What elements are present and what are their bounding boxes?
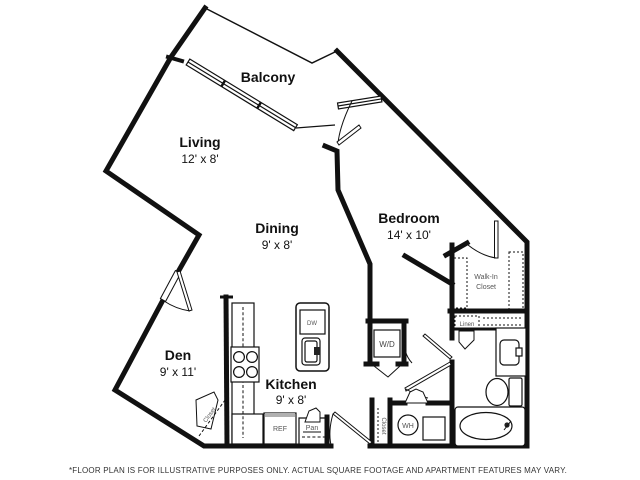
toilet-icon: [486, 378, 522, 406]
bathroom-vanity: [496, 328, 526, 376]
floor-plan-page: Balcony Living 12' x 8' Dining 9' x 8' B…: [0, 0, 640, 480]
floor-plan-svg: Balcony Living 12' x 8' Dining 9' x 8' B…: [0, 0, 640, 480]
stove-icon: [231, 347, 259, 382]
balcony-outline: [205, 8, 337, 63]
room-label-living: Living 12' x 8': [179, 134, 220, 166]
refrigerator-label: REF: [273, 426, 287, 433]
utility-door: [405, 389, 428, 403]
walk-in-closet-label-2: Closet: [476, 284, 496, 291]
room-label-balcony: Balcony: [241, 69, 296, 85]
svg-text:Kitchen: Kitchen: [265, 376, 316, 392]
washer-dryer-label: W/D: [379, 340, 395, 349]
linen-label: Linen: [460, 322, 475, 328]
svg-text:Bedroom: Bedroom: [378, 210, 439, 226]
kitchen-sink-icon: [302, 338, 320, 365]
room-label-kitchen: Kitchen 9' x 8': [265, 376, 316, 407]
svg-text:9' x 8': 9' x 8': [262, 238, 293, 252]
balcony-door-sidelight: [338, 96, 382, 109]
hall-closet-label: Closet: [380, 417, 386, 434]
balcony-wall-thin: [296, 125, 335, 128]
svg-text:12' x 8': 12' x 8': [181, 152, 218, 166]
svg-text:Balcony: Balcony: [241, 69, 296, 85]
svg-text:9' x 11': 9' x 11': [160, 365, 196, 379]
svg-text:14' x 10': 14' x 10': [387, 228, 431, 242]
dishwasher-label: DW: [307, 321, 317, 327]
utility-pan: [423, 417, 445, 440]
svg-text:Living: Living: [179, 134, 220, 150]
bathtub-icon: [455, 407, 525, 446]
svg-text:9' x 8': 9' x 8': [276, 393, 307, 407]
walk-in-closet-label-1: Walk-In: [474, 274, 498, 281]
bedroom-door: [405, 334, 452, 363]
kitchen-island: [296, 303, 329, 371]
entry-door: [330, 412, 372, 445]
den-door: [160, 271, 192, 311]
walk-in-closet-door: [468, 221, 498, 258]
svg-text:Dining: Dining: [255, 220, 299, 236]
room-label-bedroom: Bedroom 14' x 10': [378, 210, 439, 242]
room-label-den: Den 9' x 11': [160, 347, 196, 379]
washer-dryer-closet: [374, 330, 400, 377]
svg-text:Den: Den: [165, 347, 191, 363]
water-heater-label: WH: [402, 423, 414, 430]
disclaimer-text: *FLOOR PLAN IS FOR ILLUSTRATIVE PURPOSES…: [69, 466, 567, 475]
room-label-dining: Dining 9' x 8': [255, 220, 299, 252]
linen-closet: [455, 316, 479, 349]
pantry-label: Pan: [306, 425, 319, 432]
